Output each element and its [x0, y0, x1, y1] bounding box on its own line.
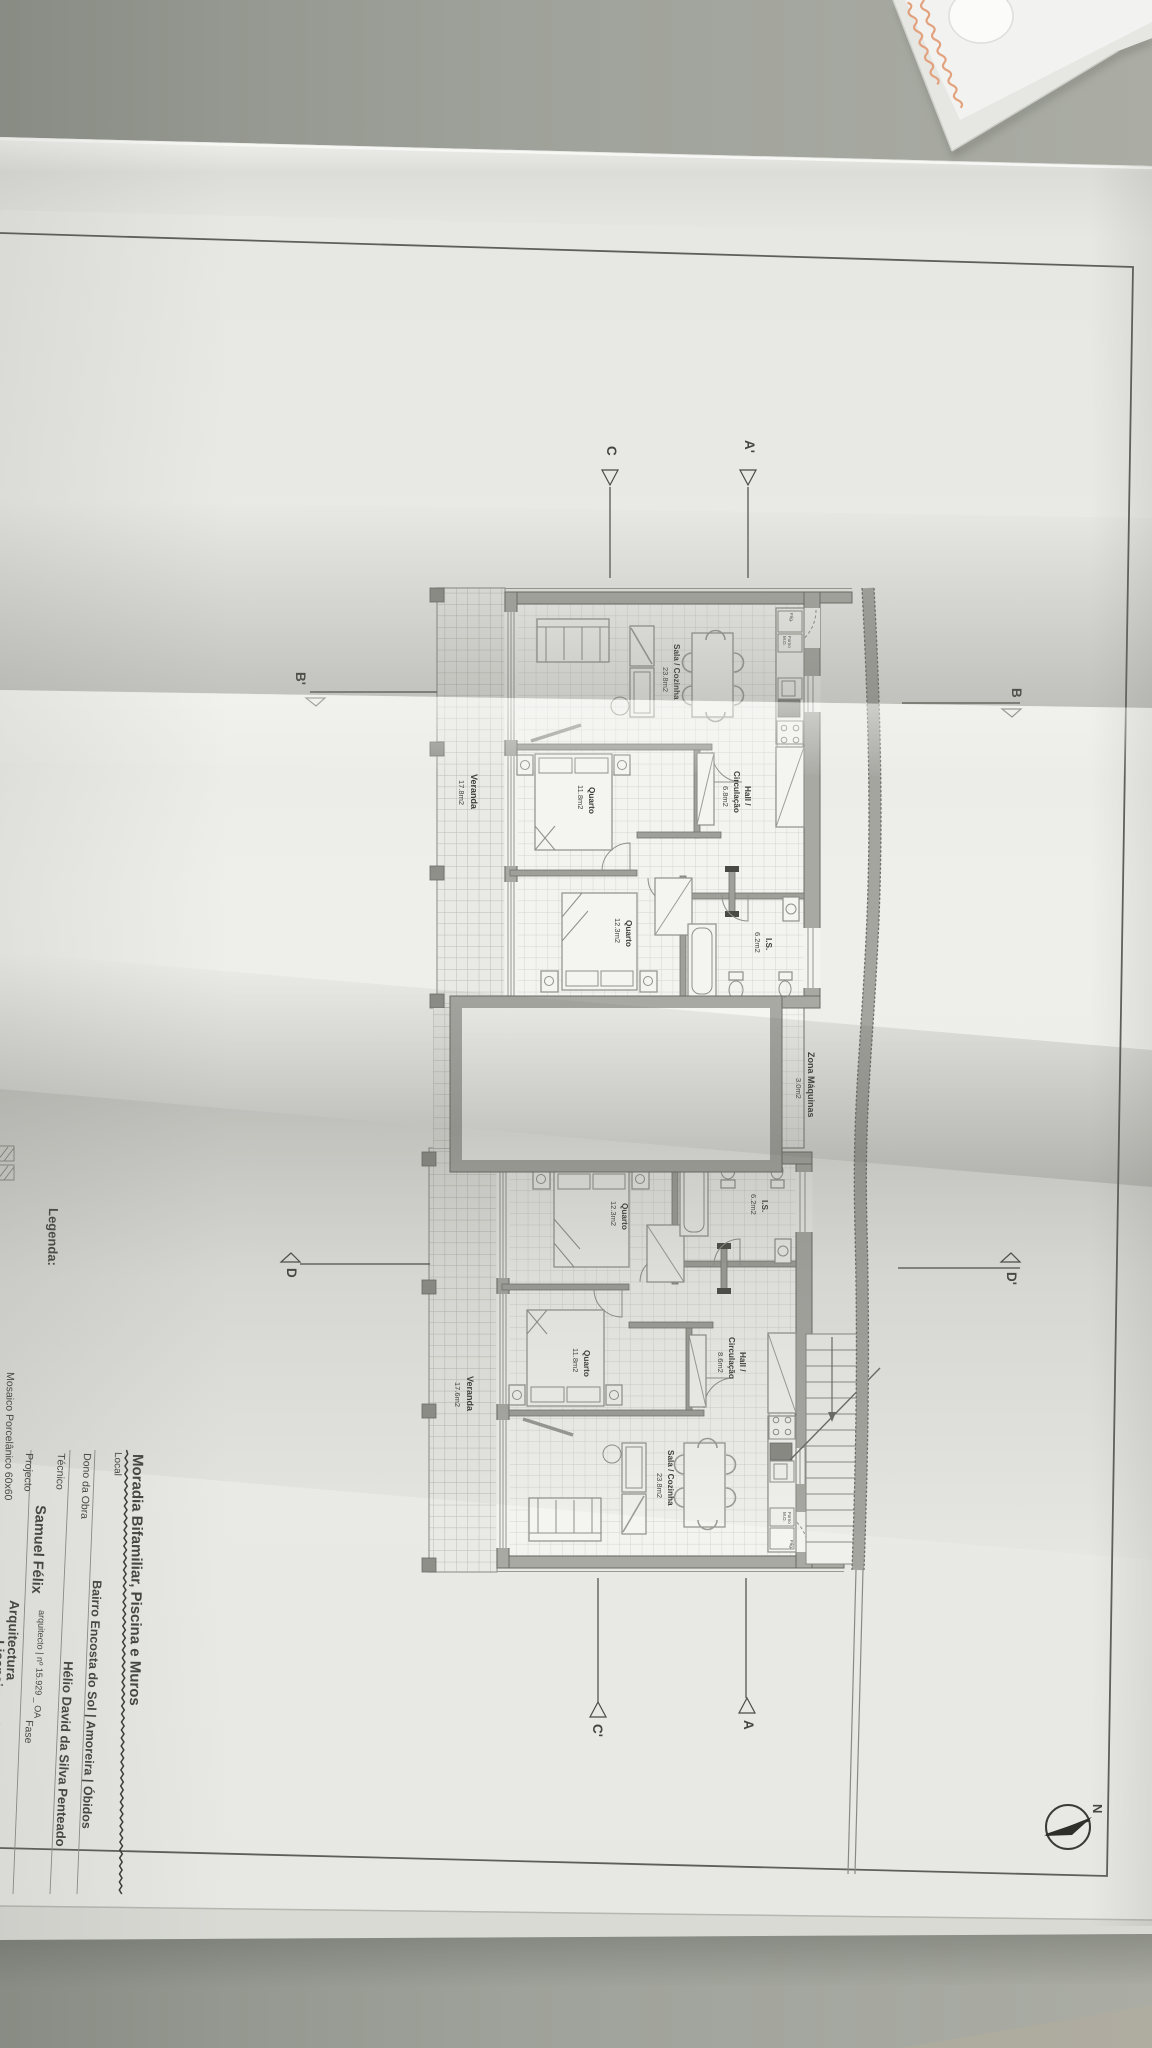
svg-text:Veranda: Veranda: [469, 774, 479, 810]
svg-text:12.3m2: 12.3m2: [613, 918, 622, 943]
svg-text:6.8m2: 6.8m2: [721, 786, 730, 807]
svg-text:Frig.: Frig.: [789, 1540, 794, 1549]
svg-text:I.S.: I.S.: [764, 938, 773, 950]
svg-text:A': A': [742, 440, 757, 453]
svg-text:Quarto: Quarto: [624, 920, 633, 947]
svg-text:C': C': [590, 1724, 605, 1737]
svg-text:Quarto: Quarto: [587, 787, 596, 814]
svg-text:A: A: [741, 1720, 756, 1730]
svg-text:Circulação: Circulação: [732, 771, 741, 813]
svg-text:Hall /: Hall /: [743, 786, 752, 806]
svg-text:C: C: [604, 446, 619, 456]
svg-text:17.8m2: 17.8m2: [457, 780, 466, 805]
svg-text:6.2m2: 6.2m2: [753, 932, 762, 953]
svg-text:11.8m2: 11.8m2: [576, 785, 585, 809]
